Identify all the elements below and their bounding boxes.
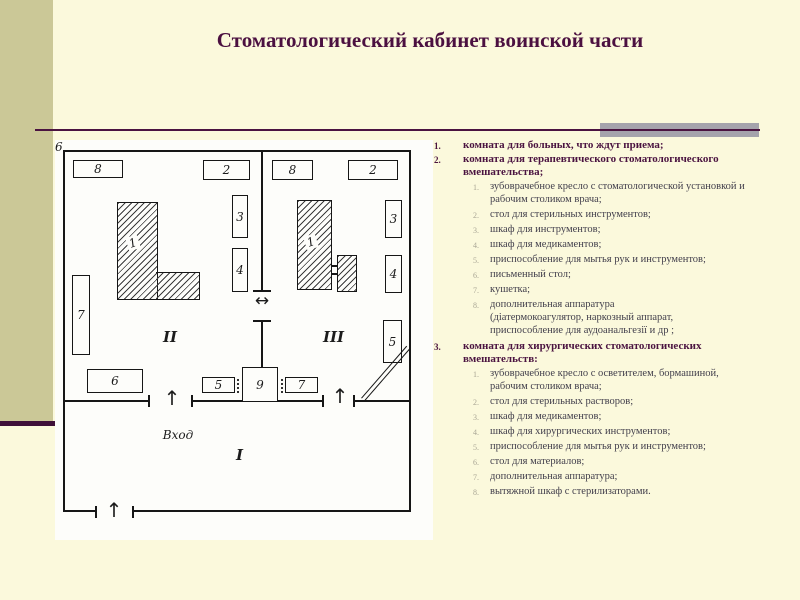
list-marker: 4. xyxy=(473,239,479,252)
list-text: зубоврачебное кресло с осветителем, борм… xyxy=(490,367,759,393)
entrance-label: Вход xyxy=(155,428,201,442)
door-jamb xyxy=(322,395,324,407)
list-item-l2: 7. дополнительная аппаратура; xyxy=(433,470,759,483)
furniture-box: 8 xyxy=(73,160,123,178)
furniture-box: 6 xyxy=(87,369,143,393)
page-title: Стоматологический кабинет воинской части xyxy=(90,28,770,53)
list-item-l2: 2. стол для стерильных инструментов; xyxy=(433,208,759,221)
list-text: приспособление для мытья рук и инструмен… xyxy=(490,253,759,266)
list-item-l2: 2. стол для стерильных растворов; xyxy=(433,395,759,408)
list-item-l2: 3. шкаф для медикаментов; xyxy=(433,410,759,423)
room-label-left: II xyxy=(163,328,177,346)
list-item-l2: 5. приспособление для мытья рук и инстру… xyxy=(433,440,759,453)
list-text: письменный стол; xyxy=(490,268,759,281)
list-marker: 1. xyxy=(473,368,479,381)
furniture-box: 7 xyxy=(285,377,318,393)
list-marker: 3. xyxy=(473,224,479,237)
list-text: дополнительная аппаратура; xyxy=(490,470,759,483)
furniture-label: 7 xyxy=(298,378,306,392)
list-text: комната для хирургических стоматологичес… xyxy=(463,340,759,366)
list-text: шкаф для медикаментов; xyxy=(490,238,759,251)
list-item-l2: 5. приспособление для мытья рук и инстру… xyxy=(433,253,759,266)
furniture-box: 2 xyxy=(348,160,398,180)
room-label-right: III xyxy=(323,328,344,346)
outline-list: 1. комната для больных, что ждут приема;… xyxy=(433,139,759,500)
furniture-label: 3 xyxy=(236,210,244,224)
furniture-label: 5 xyxy=(215,378,223,392)
list-marker: 1. xyxy=(434,140,441,153)
room-label-bottom: I xyxy=(236,446,243,464)
slide: Стоматологический кабинет воинской части… xyxy=(0,0,800,600)
furniture-label: 2 xyxy=(369,163,377,177)
furniture-box: 3 xyxy=(385,200,402,238)
center-wall-upper xyxy=(261,150,263,292)
double-arrow-icon: ↔ xyxy=(245,293,279,310)
list-marker: 2. xyxy=(434,154,441,167)
list-marker: 3. xyxy=(473,411,479,424)
list-item-l2: 6. письменный стол; xyxy=(433,268,759,281)
entrance-arrow-icon: ↑ xyxy=(162,388,182,408)
list-item-l2: 8. дополнительная аппаратура (діатермоко… xyxy=(433,298,759,337)
list-text: зубоврачебное кресло с стоматологической… xyxy=(490,180,759,206)
list-marker: 7. xyxy=(473,471,479,484)
list-item-l1: 3. комната для хирургических стоматологи… xyxy=(433,340,759,366)
list-text: стол для материалов; xyxy=(490,455,759,468)
furniture-box: 5 xyxy=(202,377,235,393)
list-marker: 5. xyxy=(473,254,479,267)
door-arrow-icon: ↑ xyxy=(330,386,350,406)
furniture-label: 7 xyxy=(77,308,85,322)
list-item-l2: 4. шкаф для хирургических инструментов; xyxy=(433,425,759,438)
list-marker: 3. xyxy=(434,341,441,354)
furniture-label: 8 xyxy=(94,162,102,176)
list-text: шкаф для хирургических инструментов; xyxy=(490,425,759,438)
dotted-link xyxy=(281,379,283,393)
dental-chair-hatch-foot xyxy=(156,272,200,300)
furniture-label: 6 xyxy=(111,374,119,388)
door-jamb xyxy=(95,506,97,518)
equipment-hatch xyxy=(337,255,357,292)
list-marker: 6. xyxy=(473,456,479,469)
list-marker: 8. xyxy=(473,299,479,312)
corridor-wall-segment xyxy=(63,400,150,402)
list-marker: 5. xyxy=(473,441,479,454)
left-accent-bar xyxy=(0,0,53,421)
list-item-l1: 1. комната для больных, что ждут приема; xyxy=(433,139,759,152)
list-item-l2: 1. зубоврачебное кресло с осветителем, б… xyxy=(433,367,759,393)
floorplan-panel: ↔ ↑ ↑ Вход ↑ 8 2 1 3 4 7 6 8 2 1 xyxy=(55,140,433,540)
list-text: стол для стерильных инструментов; xyxy=(490,208,759,221)
list-text: комната для терапевтического стоматологи… xyxy=(463,153,759,179)
furniture-box: 7 xyxy=(72,275,90,355)
list-marker: 7. xyxy=(473,284,479,297)
list-text: комната для больных, что ждут приема; xyxy=(463,139,759,152)
door-jamb xyxy=(132,506,134,518)
furniture-box: 3 xyxy=(232,195,248,238)
list-text: приспособление для мытья рук и инструмен… xyxy=(490,440,759,453)
furniture-label: 4 xyxy=(236,263,244,277)
title-rule xyxy=(35,129,760,131)
dotted-link xyxy=(237,379,239,393)
furniture-box: 2 xyxy=(203,160,250,180)
list-item-l2: 1. зубоврачебное кресло с стоматологичес… xyxy=(433,180,759,206)
corridor-wall-segment xyxy=(353,400,409,402)
list-marker: 4. xyxy=(473,426,479,439)
list-marker: 1. xyxy=(473,181,479,194)
list-text: стол для стерильных растворов; xyxy=(490,395,759,408)
furniture-label: 4 xyxy=(390,267,398,281)
list-item-l2: 7. кушетка; xyxy=(433,283,759,296)
door-jamb xyxy=(148,395,150,407)
list-item-l2: 3. шкаф для инструментов; xyxy=(433,223,759,236)
list-item-l1: 2. комната для терапевтического стоматол… xyxy=(433,153,759,179)
list-text: вытяжной шкаф с стерилизаторами. xyxy=(490,485,759,498)
list-text: дополнительная аппаратура (діатермокоагу… xyxy=(490,298,759,337)
list-text: шкаф для медикаментов; xyxy=(490,410,759,423)
list-marker: 6. xyxy=(473,269,479,282)
furniture-label: 3 xyxy=(390,212,398,226)
list-marker: 2. xyxy=(473,396,479,409)
dental-chair-hatch xyxy=(117,202,158,300)
furniture-label: 8 xyxy=(289,163,297,177)
furniture-label: 5 xyxy=(389,335,397,349)
furniture-box: 4 xyxy=(232,248,248,292)
list-item-l2: 4. шкаф для медикаментов; xyxy=(433,238,759,251)
list-marker: 8. xyxy=(473,486,479,499)
list-text: шкаф для инструментов; xyxy=(490,223,759,236)
list-item-l2: 6. стол для материалов; xyxy=(433,455,759,468)
furniture-box: 8 xyxy=(272,160,313,180)
furniture-box: 4 xyxy=(385,255,402,293)
list-marker: 2. xyxy=(473,209,479,222)
furniture-label: 2 xyxy=(223,163,231,177)
bottom-door-arrow-icon: ↑ xyxy=(104,500,124,520)
left-accent-underline xyxy=(0,421,57,426)
center-wall-lower xyxy=(261,322,263,367)
list-text: кушетка; xyxy=(490,283,759,296)
list-item-l2: 8. вытяжной шкаф с стерилизаторами. xyxy=(433,485,759,498)
furniture-label: 9 xyxy=(256,378,264,392)
furniture-box: 9 xyxy=(242,367,278,402)
